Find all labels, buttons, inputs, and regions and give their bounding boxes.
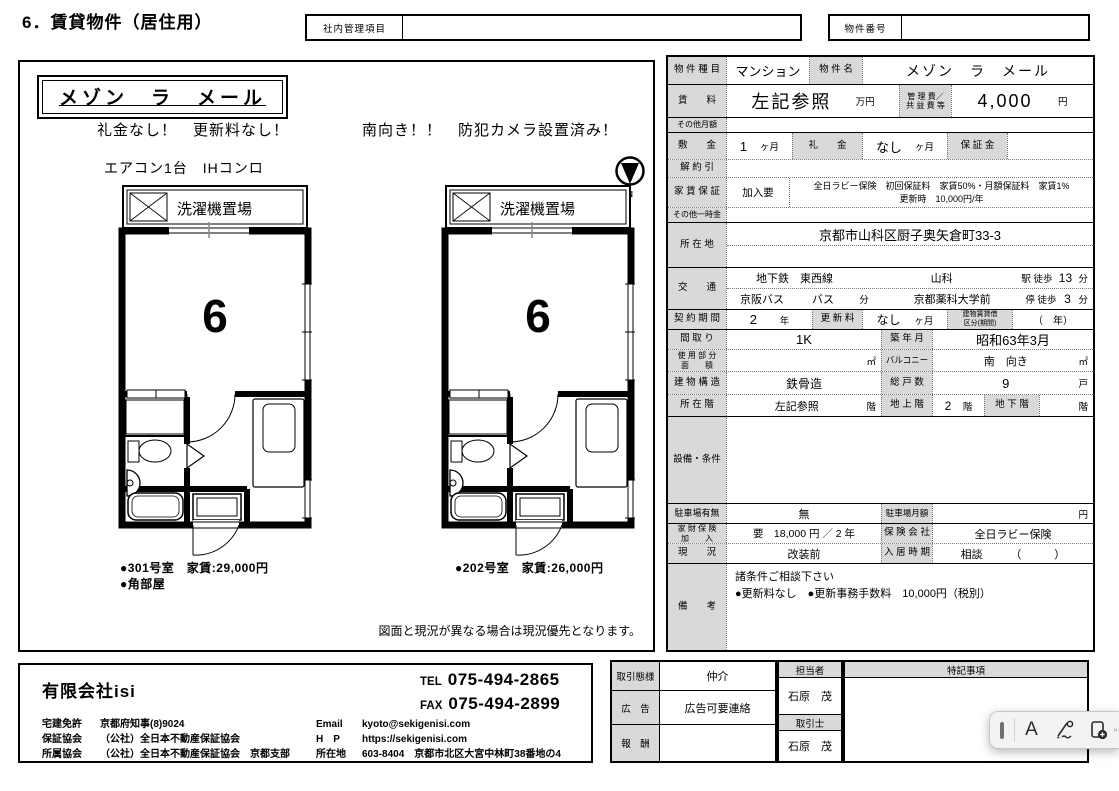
washing-machine-icon (130, 193, 167, 221)
row-rent-guarantee: 家 賃 保 証 加入要 全日ラビー保険 初回保証料 家賃50%・月額保証料 家賃… (668, 178, 1093, 208)
company-tel: TEL 075-494-2865 (420, 670, 560, 690)
property-name-box: メゾン ラ メール (37, 75, 288, 119)
svg-text:6: 6 (202, 290, 228, 342)
property-number-box: 物件番号 (828, 14, 1090, 41)
svg-text:6: 6 (525, 290, 551, 342)
row-parking: 駐車場有無 無 駐車場月額 円 (668, 504, 1093, 524)
room-301-caption: ●301号室 家賃:29,000円 (120, 560, 268, 576)
row-other-onetime: その他一時金 (668, 208, 1093, 223)
agent-name: 石原 茂 (779, 731, 841, 761)
internal-management-box: 社内管理項目 (305, 14, 802, 41)
document-page: 6．賃貸物件（居住用） 社内管理項目 物件番号 メゾン ラ メール 礼金なし！ … (0, 0, 1119, 791)
row-equipment: 設備・条件 (668, 417, 1093, 504)
spec-table: 物 件 種 目 マンション 物 件 名 メゾン ラ メール 賃 料 左記参照 万… (666, 55, 1095, 652)
insert-from-device-button[interactable] (1081, 712, 1114, 748)
signature-icon (1054, 719, 1076, 741)
row-cancellation: 解 約 引 (668, 160, 1093, 178)
text-tool-icon: A (1025, 719, 1038, 741)
markup-toolbar: A (989, 711, 1119, 749)
staff-box: 担当者 石原 茂 取引士 石原 茂 (777, 660, 843, 763)
company-name: 有限会社isi (42, 677, 136, 702)
room-301-caption2: ●角部屋 (120, 576, 165, 592)
text-tool-button[interactable]: A (1015, 712, 1048, 748)
floor-plan-301: 洗濯機置場 6 (117, 184, 313, 556)
company-licenses: 宅建免許京都府知事(8)9024 保証協会（公社）全日本不動産保証協会 所属協会… (42, 717, 290, 762)
company-email: kyoto@sekigenisi.com (362, 717, 470, 732)
staff-name: 石原 茂 (779, 678, 841, 715)
text-cursor-button[interactable] (990, 712, 1014, 748)
highlight-line1b: 南向き！！ 防犯カメラ設置済み！ (362, 119, 618, 140)
property-number-label: 物件番号 (830, 16, 902, 39)
page-title: 6．賃貸物件（居住用） (22, 8, 212, 33)
row-insurance: 家 財 保 険 加 入 要 18,000 円 ／ 2 年 保 険 会 社 全日ラ… (668, 524, 1093, 544)
row-property-type: 物 件 種 目 マンション 物 件 名 メゾン ラ メール (668, 57, 1093, 85)
row-floor: 所 在 階 左記参照階 地 上 階 2階 地 下 階 階 (668, 395, 1093, 417)
row-structure: 建 物 構 造 鉄骨造 総 戸 数 9戸 (668, 372, 1093, 395)
row-other-monthly: その他月額 (668, 118, 1093, 133)
company-address: 603-8404 京都市北区大宮中林町38番地の4 (362, 747, 561, 762)
row-access: 交 通 地下鉄 東西線 山科 駅 徒歩 13 分 京阪バス バス 分 京都薬科大… (668, 268, 1093, 310)
partial-tool-icon (1114, 719, 1119, 741)
svg-text:洗濯機置場: 洗濯機置場 (177, 201, 252, 218)
row-floor-area: 使 用 部 分 面 積 ㎡ バルコニー 南 向き㎡ (668, 350, 1093, 372)
company-website: https://sekigenisi.com (362, 732, 467, 747)
company-fax: FAX 075-494-2899 (420, 694, 560, 714)
text-cursor-icon (1000, 722, 1004, 739)
row-contract-term: 契 約 期 間 2年 更 新 料 なしヶ月 建物賃貸借 区分(期間) （ 年） (668, 310, 1093, 330)
property-number-value (902, 16, 1088, 39)
highlight-line2: エアコン1台 IHコンロ (104, 158, 264, 178)
highlight-line1a: 礼金なし！ 更新料なし！ (97, 119, 289, 140)
row-rent: 賃 料 左記参照 万円 管 理 費／ 共 益 費 等 4,000 円 (668, 85, 1093, 118)
row-deposit: 敷 金 1ヶ月 礼 金 なしヶ月 保 証 金 (668, 133, 1093, 160)
room-202-caption: ●202号室 家賃:26,000円 (455, 560, 603, 576)
floor-plan-202: 洗濯機置場 6 (440, 184, 636, 556)
company-contact: Emailkyoto@sekigenisi.com H Phttps://sek… (316, 717, 561, 762)
add-device-icon (1087, 719, 1109, 741)
row-layout: 間 取 り 1K 築 年 月 昭和63年3月 (668, 330, 1093, 350)
internal-management-value (403, 16, 800, 39)
row-address: 所 在 地 京都市山科区厨子奥矢倉町33-3 (668, 223, 1093, 268)
washing-machine-icon (453, 193, 490, 221)
property-name: メゾン ラ メール (42, 80, 283, 114)
floorplan-panel: メゾン ラ メール 礼金なし！ 更新料なし！ 南向き！！ 防犯カメラ設置済み！ … (18, 60, 655, 652)
row-remarks: 備 考 諸条件ご相談下さい ●更新料なし ●更新事務手数料 10,000円（税別… (668, 564, 1093, 650)
svg-text:洗濯機置場: 洗濯機置場 (500, 201, 575, 218)
deal-table: 取引態様 仲介 広 告 広告可要連絡 報 酬 (610, 660, 777, 763)
row-current-state: 現 況 改装前 入 居 時 期 相談（ ） (668, 544, 1093, 564)
signature-button[interactable] (1048, 712, 1081, 748)
internal-management-label: 社内管理項目 (307, 16, 403, 39)
company-info-box: 有限会社isi TEL 075-494-2865 FAX 075-494-289… (18, 663, 593, 763)
more-tools-button[interactable] (1114, 712, 1119, 748)
disclaimer-text: 図面と現況が異なる場合は現況優先となります。 (379, 622, 641, 639)
